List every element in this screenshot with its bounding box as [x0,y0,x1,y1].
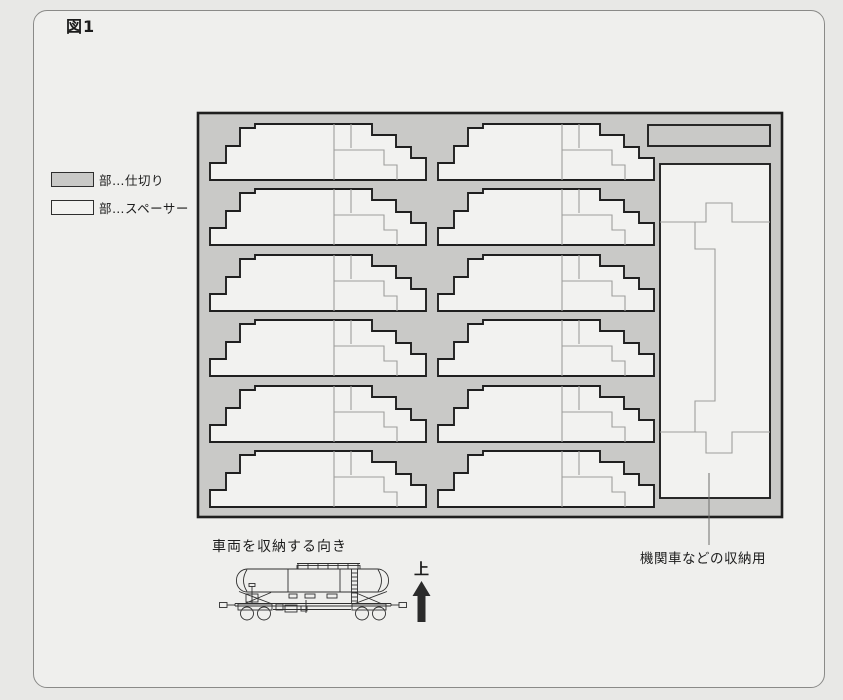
partition-strip [648,125,770,146]
tank-car-illustration [218,556,418,630]
locomotive-storage-label: 機関車などの収納用 [640,547,766,567]
storage-direction-label: 車両を収納する向き [212,536,347,556]
up-arrow-icon [408,578,436,626]
instruction-sheet: 図1 部…仕切り 部…スペーサー 車両を収納する向き 機関車などの収納用 上 [0,0,843,700]
